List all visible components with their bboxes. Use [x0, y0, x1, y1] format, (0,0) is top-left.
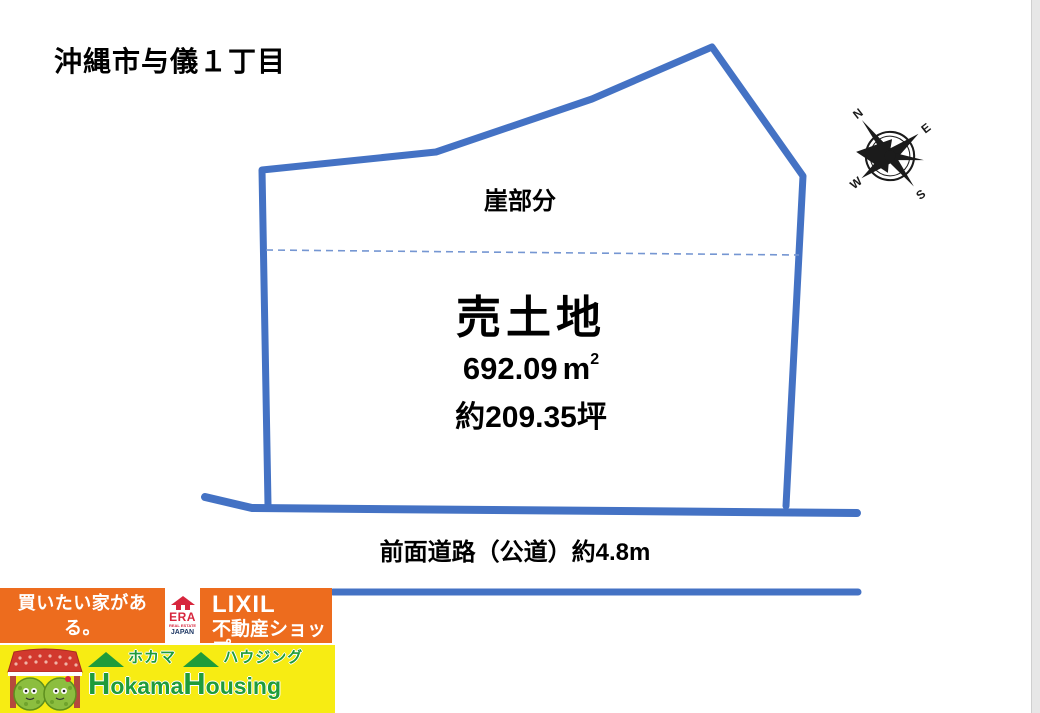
front-road-line — [205, 497, 857, 513]
housing-kana: ハウジング — [223, 646, 303, 667]
catchphrase-line1: 買いたい家がある。 — [0, 591, 165, 641]
page-right-edge — [1031, 0, 1040, 713]
land-area-sqm: 692.09m2 — [381, 351, 681, 387]
parcel-outline — [262, 47, 803, 506]
era-logo: ERA REAL ESTATE JAPAN — [165, 588, 200, 643]
compass-e-label: E — [918, 120, 933, 136]
housing-column: ハウジング Housing — [183, 649, 303, 699]
cliff-area-label: 崖部分 — [420, 181, 620, 216]
brand-banner-top: 買いたい家がある。 住みたい家にする。 ERA REAL ESTATE JAPA… — [0, 588, 332, 643]
hokama-housing-wordmark: ホカマ Hokama ハウジング Housing — [88, 649, 303, 699]
area-exponent: 2 — [590, 351, 599, 368]
roof-triangle-icon — [88, 652, 124, 667]
compass-rose-icon: N E S W — [834, 100, 946, 212]
housing-en: Housing — [183, 668, 303, 699]
cliff-divider-dashed-line — [266, 250, 799, 255]
era-tagline: REAL ESTATE — [169, 624, 196, 628]
front-road-label: 前面道路（公道）約4.8m — [300, 532, 730, 567]
area-unit: m — [563, 351, 591, 386]
catchphrase-box: 買いたい家がある。 住みたい家にする。 — [0, 588, 165, 643]
compass-n-label: N — [850, 105, 865, 121]
area-value: 692.09 — [463, 351, 558, 386]
hokama-housing-banner: ホカマ Hokama ハウジング Housing — [0, 645, 335, 713]
hokama-column: ホカマ Hokama — [88, 649, 183, 699]
compass-w-label: W — [847, 174, 865, 192]
sale-land-label: 売土地 — [381, 281, 681, 346]
era-name: ERA — [169, 611, 196, 623]
lixil-shop-logo: LIXIL 不動産ショップ — [200, 588, 332, 643]
lixil-name: LIXIL — [212, 592, 332, 617]
roof-triangle-icon — [183, 652, 219, 667]
era-region: JAPAN — [171, 629, 194, 636]
hokama-en: Hokama — [88, 668, 183, 699]
compass-s-label: S — [913, 187, 928, 203]
hokama-mascots-icon — [2, 646, 88, 712]
era-house-icon — [171, 596, 195, 610]
flyer-page: 沖縄市与儀１丁目 N E S W 崖部分 売土地 692.09m2 約209.3… — [0, 0, 1040, 713]
hokama-kana: ホカマ — [128, 646, 176, 667]
land-area-tsubo: 約209.35坪 — [381, 392, 681, 436]
